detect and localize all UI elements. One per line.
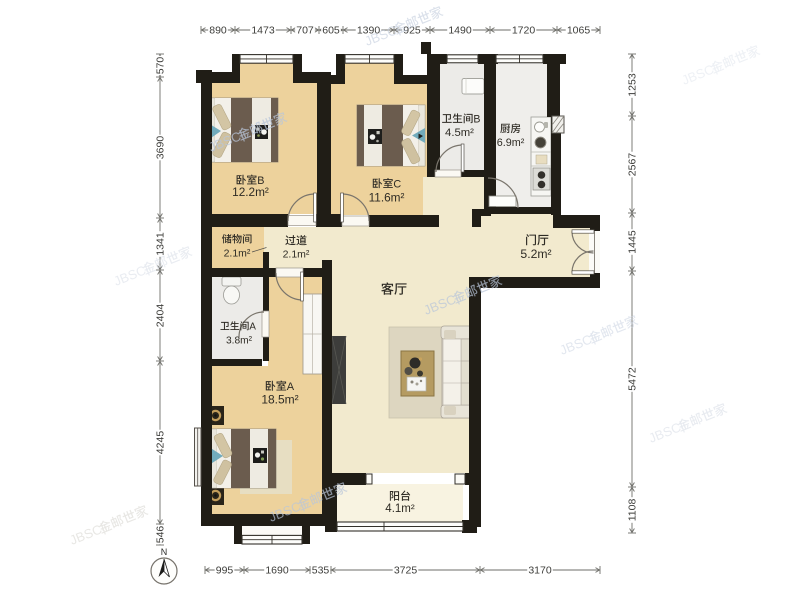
svg-text:3690: 3690 bbox=[155, 136, 167, 160]
svg-text:1445: 1445 bbox=[627, 230, 639, 254]
svg-text:5.2m²: 5.2m² bbox=[520, 247, 551, 261]
svg-text:995: 995 bbox=[216, 565, 234, 577]
svg-text:18.5m²: 18.5m² bbox=[261, 392, 298, 406]
svg-text:2.1m²: 2.1m² bbox=[283, 248, 310, 260]
svg-text:890: 890 bbox=[209, 25, 227, 37]
svg-text:707: 707 bbox=[296, 25, 314, 37]
svg-text:11.6m²: 11.6m² bbox=[369, 191, 405, 205]
svg-text:535: 535 bbox=[312, 565, 330, 577]
svg-text:4.1m²: 4.1m² bbox=[385, 503, 415, 515]
svg-text:1341: 1341 bbox=[155, 232, 167, 256]
svg-text:12.2m²: 12.2m² bbox=[232, 185, 269, 199]
svg-text:546: 546 bbox=[155, 526, 167, 544]
svg-text:5472: 5472 bbox=[627, 367, 639, 391]
svg-text:1690: 1690 bbox=[265, 565, 289, 577]
svg-text:570: 570 bbox=[155, 57, 167, 75]
svg-text:1720: 1720 bbox=[512, 25, 536, 37]
svg-text:N: N bbox=[161, 547, 168, 557]
svg-text:B: B bbox=[473, 113, 480, 125]
svg-text:3.8m²: 3.8m² bbox=[226, 336, 253, 347]
svg-text:605: 605 bbox=[322, 25, 340, 37]
svg-text:3170: 3170 bbox=[528, 565, 552, 577]
svg-text:1253: 1253 bbox=[627, 73, 639, 97]
svg-text:4.5m²: 4.5m² bbox=[445, 127, 474, 139]
svg-text:2.1m²: 2.1m² bbox=[224, 247, 251, 259]
svg-text:1065: 1065 bbox=[567, 25, 591, 37]
svg-text:2404: 2404 bbox=[155, 304, 167, 328]
svg-text:6.9m²: 6.9m² bbox=[497, 137, 525, 149]
svg-text:C: C bbox=[393, 178, 401, 190]
svg-text:1108: 1108 bbox=[627, 499, 639, 522]
svg-text:1473: 1473 bbox=[251, 25, 275, 37]
svg-text:1490: 1490 bbox=[448, 25, 472, 37]
svg-text:A: A bbox=[249, 322, 256, 333]
svg-text:4245: 4245 bbox=[155, 431, 167, 455]
svg-text:A: A bbox=[287, 381, 295, 393]
svg-text:2567: 2567 bbox=[627, 153, 639, 177]
svg-text:3725: 3725 bbox=[394, 565, 418, 577]
